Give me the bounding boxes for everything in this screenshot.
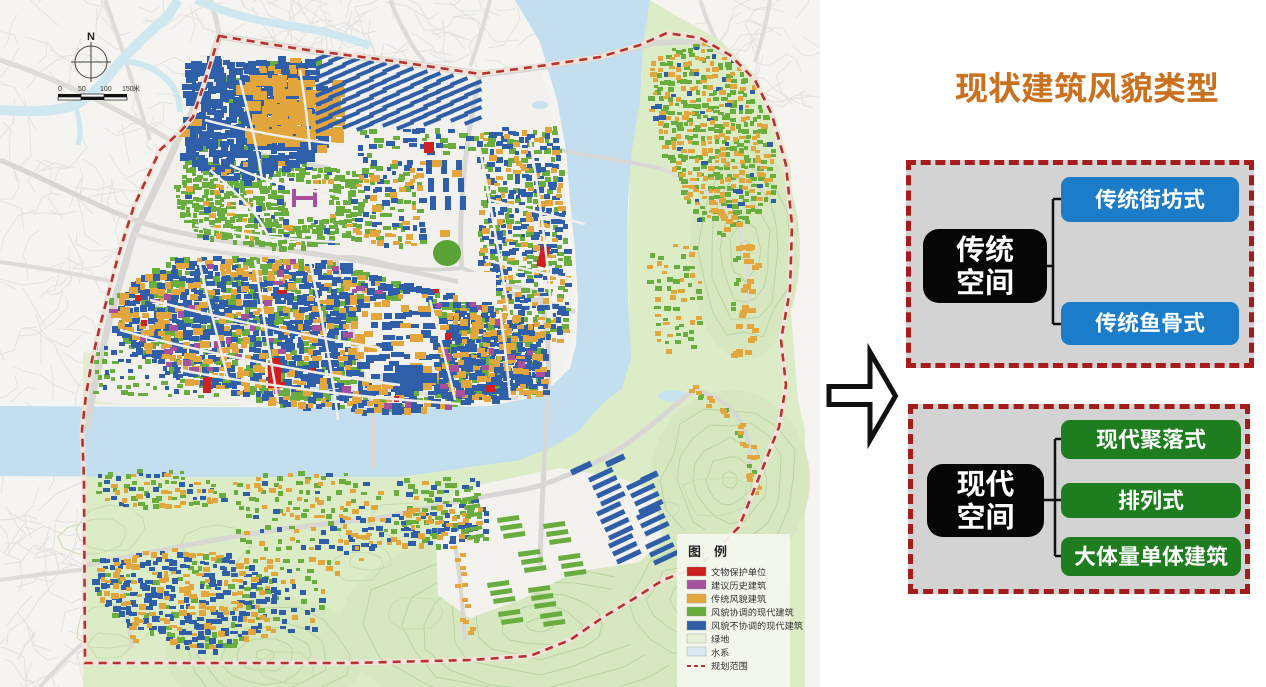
svg-text:100: 100 [100, 86, 112, 93]
svg-text:N: N [87, 31, 95, 43]
svg-text:150: 150 [122, 86, 134, 93]
svg-text:50: 50 [78, 86, 86, 93]
svg-text:0: 0 [58, 86, 62, 93]
